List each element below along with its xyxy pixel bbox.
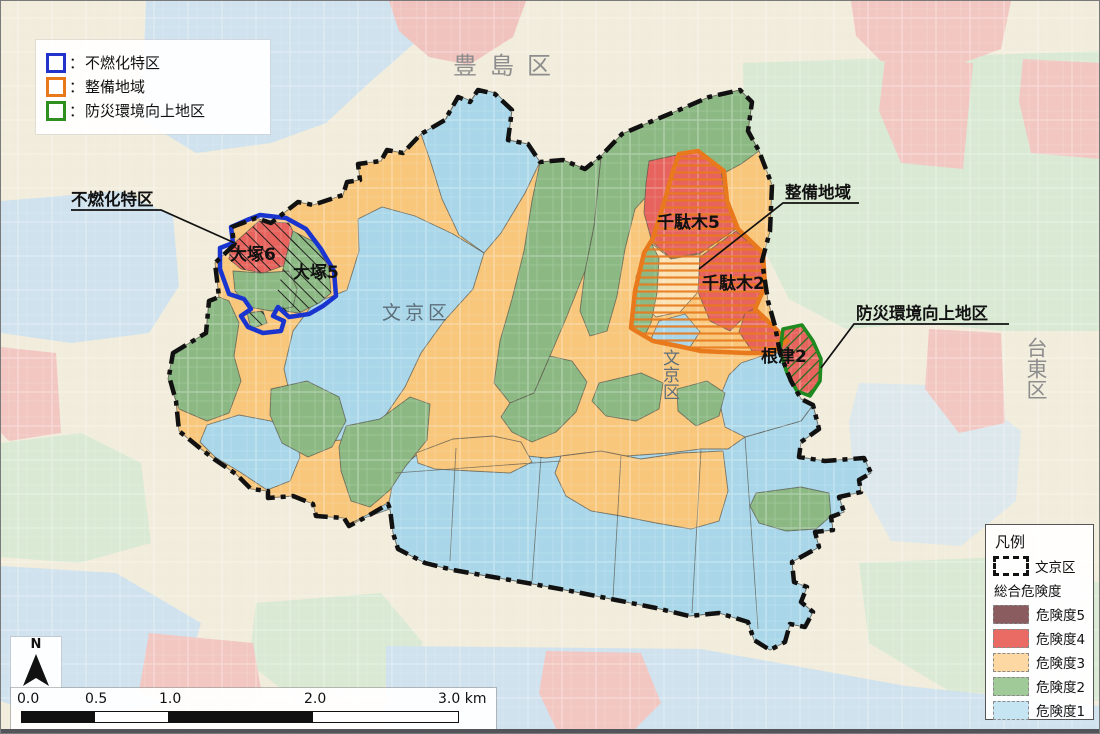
overlay-legend-label: 整備地域 bbox=[85, 78, 145, 97]
label-toshima: 豊島区 bbox=[453, 52, 564, 80]
label-sendagi2: 千駄木2 bbox=[702, 273, 765, 294]
north-label: N bbox=[11, 638, 61, 652]
label-otsuka5: 大塚5 bbox=[293, 262, 339, 283]
scalebar: 0.0 0.5 1.0 2.0 3.0 km bbox=[11, 688, 496, 729]
legend-subtitle: 総合危険度 bbox=[994, 580, 1086, 600]
funenka-outline-swatch-icon bbox=[46, 53, 66, 73]
overlay-legend-row-seibi: ： 整備地域 bbox=[46, 77, 260, 97]
callout-seibi-label: 整備地域 bbox=[785, 182, 852, 202]
label-taito: 台東区 bbox=[1024, 337, 1048, 400]
legend-item-label: 危険度2 bbox=[1036, 676, 1085, 696]
label-bunkyo-horizontal: 文京区 bbox=[382, 302, 451, 324]
overlay-legend-label: 不燃化特区 bbox=[85, 54, 160, 73]
overlay-legend: ： 不燃化特区 ： 整備地域 ： 防災環境向上地区 bbox=[36, 40, 270, 134]
seibi-outline-swatch-icon bbox=[46, 77, 66, 97]
label-otsuka6: 大塚6 bbox=[230, 244, 276, 265]
scalebar-tick: 0.5 bbox=[85, 691, 107, 707]
north-arrow-box: N bbox=[11, 637, 61, 689]
bottom-border-bar bbox=[1, 729, 1100, 734]
legend-item-label: 危険度1 bbox=[1036, 700, 1085, 720]
legend-boundary-label: 文京区 bbox=[1035, 556, 1076, 576]
separator: ： bbox=[69, 78, 84, 97]
label-nezu2: 根津2 bbox=[761, 346, 807, 367]
risk5-swatch bbox=[993, 605, 1029, 624]
callout-funenka-label: 不燃化特区 bbox=[71, 189, 154, 209]
risk1-swatch bbox=[993, 701, 1029, 720]
legend-boundary-row: 文京区 bbox=[993, 556, 1086, 576]
legend-row-risk4: 危険度4 bbox=[993, 628, 1086, 648]
overlay-legend-label: 防災環境向上地区 bbox=[85, 102, 205, 121]
bousai-outline-swatch-icon bbox=[46, 101, 66, 121]
north-arrow-icon bbox=[11, 652, 61, 688]
overlay-legend-row-funenka: ： 不燃化特区 bbox=[46, 53, 260, 73]
scalebar-tick: 3.0 km bbox=[438, 691, 486, 707]
separator: ： bbox=[69, 102, 84, 121]
legend-row-risk5: 危険度5 bbox=[993, 604, 1086, 624]
legend-row-risk1: 危険度1 bbox=[993, 700, 1086, 720]
callout-bousai-label: 防災環境向上地区 bbox=[856, 303, 989, 323]
scalebar-tick: 2.0 bbox=[304, 691, 326, 707]
legend-title: 凡例 bbox=[995, 531, 1086, 552]
label-sendagi5: 千駄木5 bbox=[657, 212, 720, 233]
ward-boundary-swatch-icon bbox=[993, 556, 1029, 576]
scalebar-tick: 0.0 bbox=[17, 691, 39, 707]
scalebar-bar bbox=[21, 711, 459, 723]
map-screenshot: 不燃化特区 整備地域 防災環境向上地区 大塚6 大塚5 千駄木5 千駄木2 根津… bbox=[0, 0, 1100, 734]
label-bunkyo-vertical: 文京区 bbox=[659, 349, 680, 400]
legend-row-risk3: 危険度3 bbox=[993, 652, 1086, 672]
risk2-swatch bbox=[993, 677, 1029, 696]
legend-item-label: 危険度3 bbox=[1036, 652, 1085, 672]
legend-item-label: 危険度4 bbox=[1036, 628, 1085, 648]
legend-item-label: 危険度5 bbox=[1036, 604, 1085, 624]
overlay-legend-row-bousai: ： 防災環境向上地区 bbox=[46, 101, 260, 121]
legend-panel: 凡例 文京区 総合危険度 危険度5 危険度4 危険度3 危険度2 危険度1 bbox=[985, 524, 1094, 720]
scalebar-tick: 1.0 bbox=[159, 691, 181, 707]
legend-row-risk2: 危険度2 bbox=[993, 676, 1086, 696]
risk3-swatch bbox=[993, 653, 1029, 672]
risk4-swatch bbox=[993, 629, 1029, 648]
separator: ： bbox=[69, 54, 84, 73]
